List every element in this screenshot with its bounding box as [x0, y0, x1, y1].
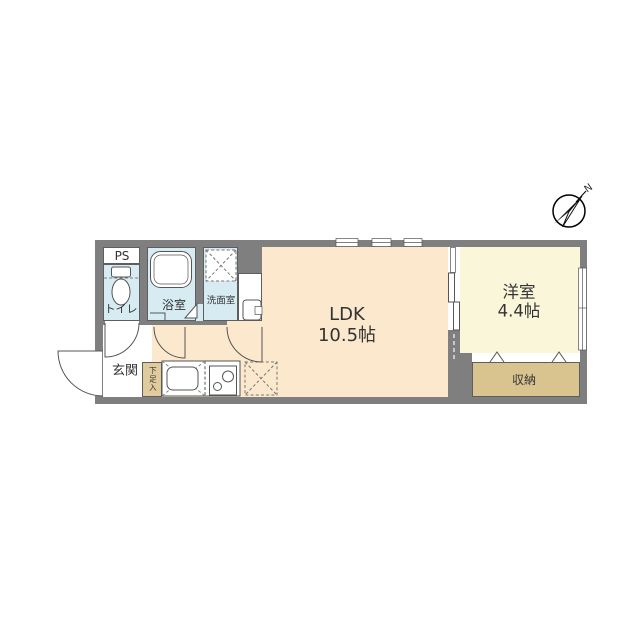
ldk-name: LDK — [318, 304, 376, 325]
shoe-cabinet-label: 下足入 — [148, 366, 157, 392]
floorplan: PS トイレ 浴室 洗面室 LDK 10.5帖 洋室 4.4帖 収納 玄関 下足… — [0, 0, 640, 640]
entrance-label: 玄関 — [112, 363, 138, 378]
western-room-label: 洋室 4.4帖 — [498, 283, 541, 322]
washroom-label: 洗面室 — [207, 295, 236, 306]
entrance-door-opening — [95, 351, 102, 396]
compass-icon — [553, 191, 586, 227]
washbasin-alcove — [238, 273, 262, 321]
bath-label: 浴室 — [162, 298, 186, 312]
bath-door-opening — [196, 304, 203, 321]
kitchen-area — [152, 325, 262, 397]
toilet-label: トイレ — [105, 304, 138, 317]
closet-door-strip — [472, 353, 580, 362]
compass-north-label: N — [583, 182, 596, 196]
ldk-label: LDK 10.5帖 — [318, 304, 376, 346]
washroom-door-opening — [227, 321, 262, 325]
western-room-size: 4.4帖 — [498, 302, 541, 321]
ps-label: PS — [115, 249, 130, 263]
western-room-name: 洋室 — [498, 283, 541, 302]
storage-label: 収納 — [512, 373, 536, 387]
ldk-size: 10.5帖 — [318, 325, 376, 346]
sliding-door-strip — [448, 247, 460, 330]
room-washroom — [203, 247, 238, 321]
toilet-door-opening — [105, 321, 139, 325]
